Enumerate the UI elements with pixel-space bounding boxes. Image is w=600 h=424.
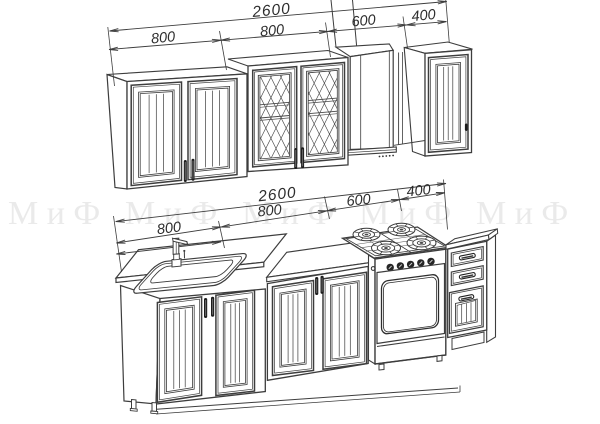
- svg-text:800: 800: [150, 29, 176, 47]
- svg-text:600: 600: [351, 12, 377, 30]
- svg-text:МиФ: МиФ: [8, 195, 109, 232]
- svg-text:600: 600: [346, 192, 372, 210]
- svg-text:МиФ: МиФ: [476, 195, 577, 232]
- svg-text:800: 800: [259, 22, 285, 40]
- svg-text:800: 800: [257, 202, 283, 220]
- svg-text:400: 400: [411, 7, 437, 25]
- svg-text:400: 400: [406, 182, 432, 200]
- svg-text:800: 800: [156, 219, 182, 238]
